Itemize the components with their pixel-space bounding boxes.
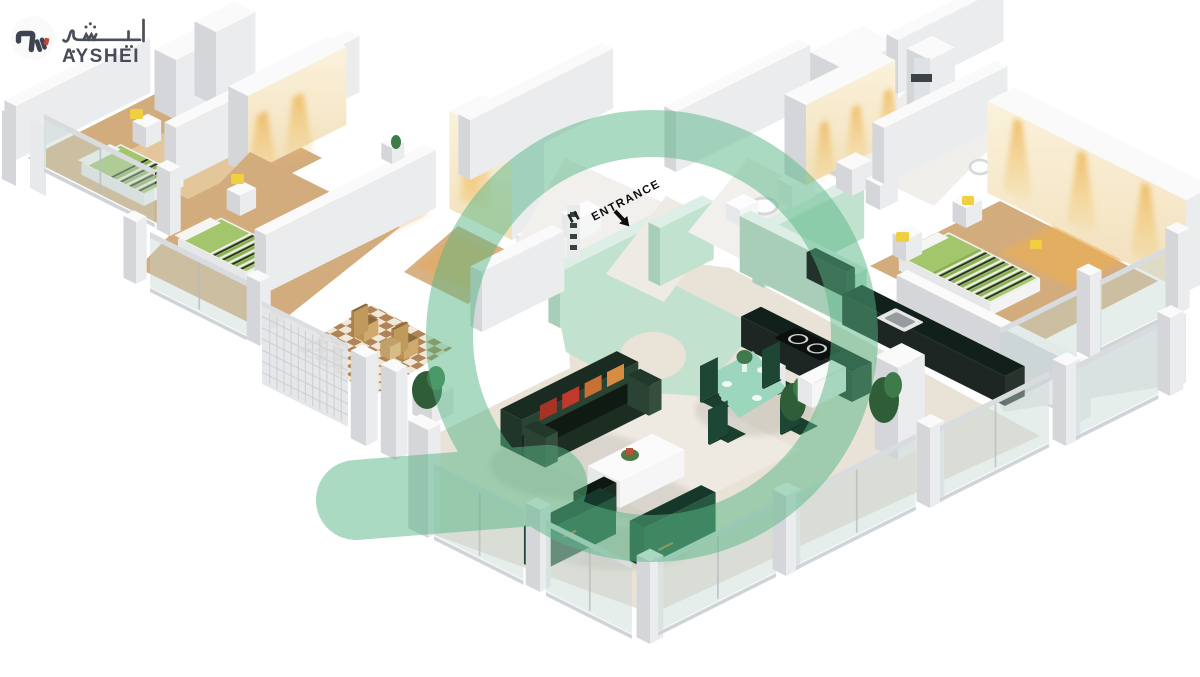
svg-text:AYSHEI: AYSHEI <box>62 46 140 67</box>
